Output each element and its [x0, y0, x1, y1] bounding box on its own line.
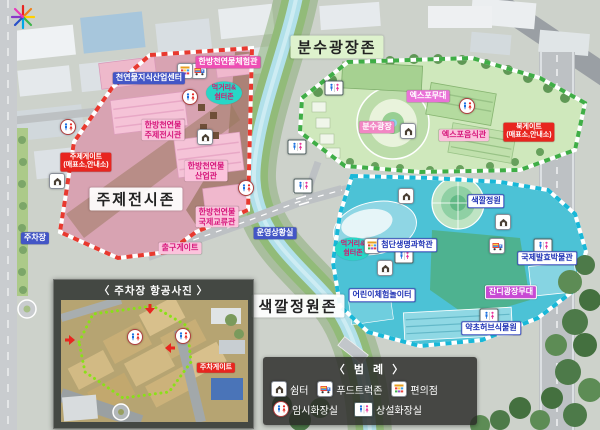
permanent-toilet-icon — [294, 179, 313, 194]
entry-arrow-icon — [61, 335, 78, 345]
label-ferment-museum: 국제발효박물관 — [517, 251, 577, 265]
legend-row-1: 쉼터 푸드트럭존 편의점 — [271, 381, 469, 397]
label-ops-room: 운영상황실 — [254, 227, 297, 239]
food-truck-icon — [489, 238, 505, 254]
label-color-garden: 색깔정원 — [467, 194, 504, 208]
legend-panel: 〈 범 례 〉 쉼터 푸드트럭존 편의점 임시화장실 상설화장실 — [263, 357, 477, 425]
permanent-toilet-icon — [325, 81, 344, 96]
theme-zone-title: 주제전시존 — [89, 188, 182, 211]
shelter-icon — [271, 381, 287, 397]
expo-logo-icon — [8, 3, 38, 33]
label-kids-playground: 어린이체험놀이터 — [349, 288, 416, 302]
shelter-icon — [400, 123, 416, 139]
permanent-toilet-icon — [354, 402, 373, 417]
shelter-icon — [377, 260, 393, 276]
parking-photo-panel: 〈 주차장 항공사진 〉 주차게이트 — [53, 279, 254, 429]
legend-title: 〈 범 례 〉 — [271, 361, 469, 377]
temporary-toilet-icon — [127, 329, 143, 345]
shelter-icon — [49, 173, 65, 189]
legend-row-2: 임시화장실 상설화장실 — [273, 401, 469, 417]
label-exit-gate: 출구게이트 — [159, 242, 202, 254]
shelter-icon — [197, 129, 213, 145]
expo-site-map: 주제전시존 분수광장존 색깔정원존 천연물지식산업센터 한방천연물체험관 한방천… — [0, 0, 600, 430]
legend-label-perm-toilet: 상설화장실 — [376, 402, 422, 417]
legend-item-store: 편의점 — [391, 381, 438, 397]
label-knowledge-center: 천연물지식산업센터 — [113, 72, 185, 84]
label-expo-food-hall: 엑스포음식관 — [439, 129, 489, 141]
temporary-toilet-icon — [175, 328, 191, 344]
legend-item-temp-toilet: 임시화장실 — [273, 401, 338, 417]
label-industry-hall: 한방천연물 산업관 — [185, 160, 228, 181]
temporary-toilet-icon — [182, 89, 198, 105]
legend-label-food-truck: 푸드트럭존 — [336, 382, 382, 397]
fountain-zone-title: 분수광장존 — [290, 36, 383, 59]
legend-item-shelter: 쉼터 — [271, 381, 308, 397]
garden-zone-title: 색깔정원존 — [251, 295, 344, 318]
entry-arrow-icon — [145, 300, 155, 317]
shelter-icon — [495, 214, 511, 230]
temporary-toilet-icon — [273, 401, 289, 417]
convenience-store-icon — [391, 381, 407, 397]
label-experience-hall: 한방천연물체험관 — [196, 56, 261, 68]
label-expo-stage: 엑스포무대 — [407, 90, 450, 102]
parking-photo-title: 〈 주차장 항공사진 〉 — [54, 283, 253, 298]
entry-arrow-icon — [162, 343, 180, 353]
legend-label-shelter: 쉼터 — [290, 382, 308, 397]
label-parking-gate: 주차게이트 — [197, 363, 235, 373]
legend-item-food-truck: 푸드트럭존 — [317, 381, 382, 397]
label-theme-gate: 주제게이트 (매표소,안내소) — [60, 153, 111, 172]
shelter-icon — [398, 188, 414, 204]
label-theme-hall: 한방천연물 주제전시관 — [142, 119, 185, 140]
label-intl-hall: 한방천연물 국제교류관 — [196, 206, 239, 227]
label-science-hall: 첨단생명과학관 — [377, 238, 437, 252]
parking-photo-graphics — [61, 300, 248, 422]
label-fountain-plaza: 분수광장 — [359, 121, 394, 133]
temporary-toilet-icon — [459, 98, 475, 114]
legend-label-store: 편의점 — [410, 382, 438, 397]
legend-label-temp-toilet: 임시화장실 — [292, 402, 338, 417]
food-rest-zone-badge: 먹거리& 쉼터존 — [206, 82, 242, 105]
label-lawn-stage: 잔디광장무대 — [485, 285, 537, 299]
parking-aerial-photo: 주차게이트 — [61, 300, 248, 422]
temporary-toilet-icon — [238, 180, 254, 196]
food-truck-icon — [317, 381, 333, 397]
legend-item-perm-toilet: 상설화장실 — [354, 402, 422, 417]
temporary-toilet-icon — [60, 119, 76, 135]
label-parking-roadside: 주차장 — [21, 232, 49, 244]
label-north-gate: 북게이트 (매표소,안내소) — [503, 123, 554, 142]
label-herb-garden: 약초허브식물원 — [461, 321, 521, 335]
permanent-toilet-icon — [288, 140, 307, 155]
